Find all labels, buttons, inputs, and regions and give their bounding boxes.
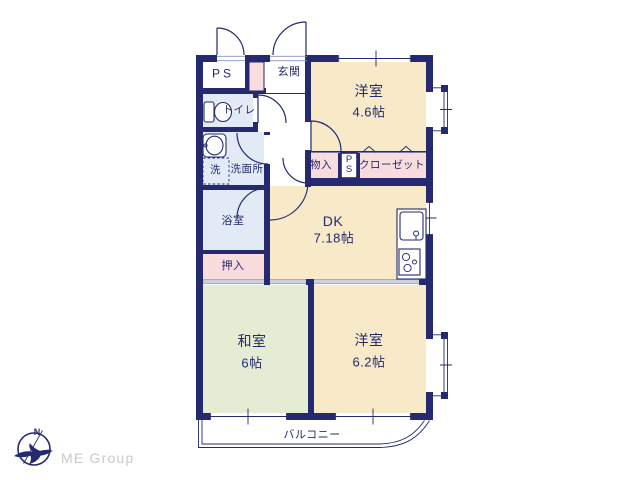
room-label-balcony: バルコニー xyxy=(283,429,340,441)
bay-window-bottom xyxy=(426,332,452,399)
sliding-door-track xyxy=(203,280,426,284)
room-label-ps-mid: PS xyxy=(345,155,354,175)
room-size-japanese: 6帖 xyxy=(241,357,262,372)
room-label-entrance: 玄関 xyxy=(278,66,301,78)
room-label-laundry: 洗 xyxy=(210,165,221,177)
room-label-western-1: 洋室 xyxy=(355,84,384,100)
room-size-dk: 7.18帖 xyxy=(314,232,355,247)
kitchen-counter xyxy=(397,209,426,279)
room-label-storage: 物入 xyxy=(310,160,332,172)
room-label-closet: クローゼット xyxy=(359,160,425,172)
logo-text: ME Group xyxy=(61,451,134,467)
room-label-ps-top: PS xyxy=(212,67,234,80)
entrance-door-arc xyxy=(273,22,306,55)
room-label-dk: DK xyxy=(323,214,343,230)
sink-icon xyxy=(203,134,226,157)
meter-box-door-arc xyxy=(217,28,244,55)
room-label-western-2: 洋室 xyxy=(355,333,384,349)
room-size-western-1: 4.6帖 xyxy=(352,106,385,121)
kitchen-sink-icon xyxy=(400,212,423,240)
room-size-western-2: 6.2帖 xyxy=(352,356,385,371)
service-pillar xyxy=(249,62,264,91)
room-label-washroom: 洗面所 xyxy=(231,164,264,176)
bay-window-top xyxy=(426,85,452,134)
compass-north-label: N xyxy=(34,427,41,437)
room-label-bathroom: 浴室 xyxy=(222,215,245,227)
room-western-2-floor xyxy=(314,285,426,413)
floorplan: PS 玄関 洋室 4.6帖 トイレ 洗面所 洗 浴室 物入 PS クローゼット … xyxy=(0,0,640,480)
room-label-oshiire: 押入 xyxy=(222,260,245,272)
toilet-door-arc xyxy=(258,95,286,123)
storage-door-arc xyxy=(283,158,308,183)
room-label-japanese: 和室 xyxy=(238,334,267,350)
room-label-toilet: トイレ xyxy=(223,105,256,117)
stove-icon xyxy=(399,249,420,275)
